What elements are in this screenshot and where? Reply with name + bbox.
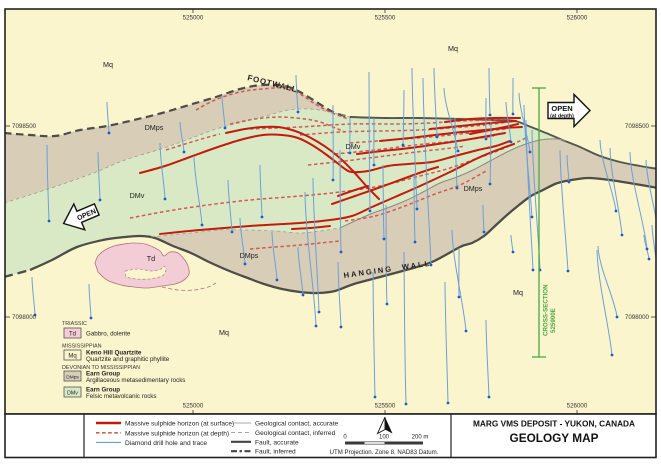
- svg-text:525000: 525000: [183, 15, 204, 22]
- svg-text:7098000: 7098000: [12, 314, 37, 321]
- svg-text:DMps: DMps: [66, 375, 79, 381]
- svg-text:525900E: 525900E: [550, 308, 557, 333]
- svg-text:Mq: Mq: [448, 44, 458, 53]
- svg-text:DMps: DMps: [464, 184, 483, 193]
- svg-text:DMv: DMv: [67, 391, 78, 397]
- svg-text:Felsic metavolcanic rocks: Felsic metavolcanic rocks: [86, 393, 157, 400]
- svg-text:DMv: DMv: [130, 191, 145, 200]
- svg-text:Mq: Mq: [513, 288, 523, 297]
- svg-text:7098000: 7098000: [625, 314, 650, 321]
- svg-text:Geological contact, accurate: Geological contact, accurate: [255, 421, 339, 428]
- svg-text:CROSS-SECTION: CROSS-SECTION: [543, 284, 550, 336]
- svg-text:DMps: DMps: [145, 123, 164, 132]
- svg-text:UTM Projection. Zone 8. NAD83: UTM Projection. Zone 8. NAD83 Datum.: [330, 449, 439, 456]
- svg-text:526000: 526000: [567, 403, 588, 410]
- svg-text:DMps: DMps: [240, 251, 259, 260]
- svg-text:7098500: 7098500: [12, 123, 37, 130]
- svg-text:7098500: 7098500: [625, 123, 650, 130]
- svg-text:100: 100: [379, 435, 390, 441]
- svg-text:200 m: 200 m: [412, 435, 429, 441]
- svg-text:GEOLOGY MAP: GEOLOGY MAP: [510, 431, 599, 445]
- svg-text:Argillaceous metasedimentary r: Argillaceous metasedimentary rocks: [86, 377, 185, 384]
- svg-text:TRIASSIC: TRIASSIC: [62, 321, 87, 327]
- svg-text:Quartzite and graphitic phylli: Quartzite and graphitic phyllite: [86, 356, 170, 363]
- svg-text:Td: Td: [69, 332, 76, 338]
- svg-text:OPEN: OPEN: [551, 104, 572, 113]
- svg-text:(at depth): (at depth): [550, 113, 574, 119]
- svg-text:Massive sulphide horizon (at d: Massive sulphide horizon (at depth): [125, 430, 229, 437]
- svg-text:525500: 525500: [375, 403, 396, 410]
- svg-text:525500: 525500: [375, 15, 396, 22]
- svg-text:Td: Td: [147, 254, 155, 263]
- svg-text:525000: 525000: [183, 403, 204, 410]
- svg-text:Massive sulphide horizon (at s: Massive sulphide horizon (at surface): [125, 421, 234, 428]
- svg-text:Mq: Mq: [68, 354, 76, 360]
- svg-text:Gabbro, dolerite: Gabbro, dolerite: [86, 331, 131, 338]
- svg-text:Geological contact, inferred: Geological contact, inferred: [255, 430, 336, 437]
- svg-text:526000: 526000: [567, 15, 588, 22]
- svg-text:Fault, inferred: Fault, inferred: [255, 449, 296, 456]
- svg-text:DMv: DMv: [346, 142, 361, 151]
- svg-text:Fault, accurate: Fault, accurate: [255, 439, 299, 446]
- svg-text:Mq: Mq: [219, 328, 229, 337]
- svg-text:Mq: Mq: [103, 60, 113, 69]
- svg-text:Diamond drill hole and trace: Diamond drill hole and trace: [125, 440, 207, 447]
- svg-text:MARG VMS DEPOSIT - YUKON, CANA: MARG VMS DEPOSIT - YUKON, CANADA: [473, 419, 635, 429]
